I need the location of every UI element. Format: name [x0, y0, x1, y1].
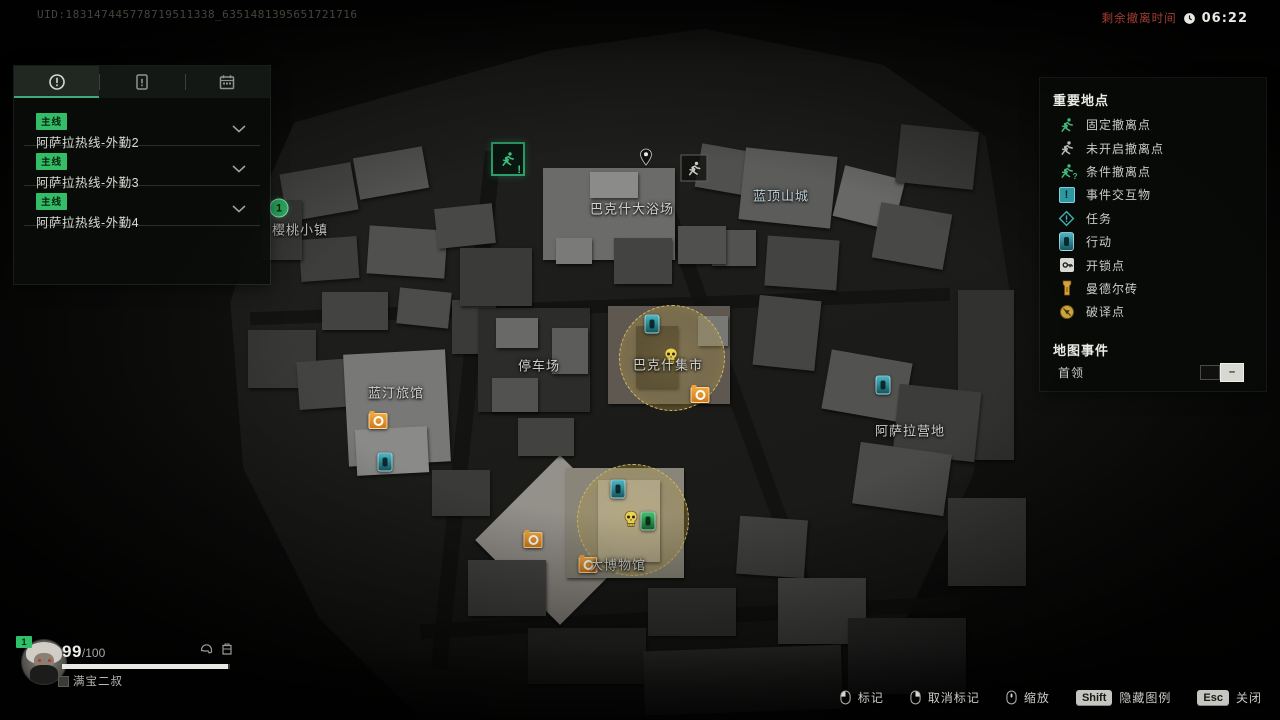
legend-item: 任务: [1040, 207, 1266, 230]
boss-label: 首领: [1058, 364, 1084, 381]
shift-key-badge: Shift: [1076, 690, 1112, 705]
tab-missions[interactable]: [14, 66, 99, 98]
legend-label: 开锁点: [1086, 257, 1125, 274]
operation-marker[interactable]: [876, 376, 891, 395]
status-icons: [200, 643, 233, 656]
legend-label: 事件交互物: [1086, 186, 1151, 203]
health-current: 99: [62, 642, 82, 661]
extraction-fixed-icon: [1058, 116, 1075, 133]
map-location-label: 阿萨拉营地: [875, 421, 945, 440]
map-event-row: 首领 –: [1040, 363, 1266, 382]
legend-label: 固定撤离点: [1086, 116, 1151, 133]
map-building: [753, 295, 822, 371]
player-info: 1 99/100 满宝二叔: [16, 634, 246, 690]
map-building: [678, 226, 726, 264]
task-green-marker[interactable]: [641, 512, 656, 531]
map-building: [468, 560, 546, 616]
legend-item: ? 条件撤离点: [1040, 160, 1266, 183]
mission-badge: 主线: [36, 113, 67, 130]
close-label: 关闭: [1236, 689, 1262, 706]
mission-badge: 主线: [36, 153, 67, 170]
map-building: [434, 203, 496, 249]
operation-marker[interactable]: [645, 315, 660, 334]
clock-icon: [1183, 12, 1196, 25]
boss-toggle[interactable]: –: [1200, 363, 1244, 382]
player-name-text: 满宝二叔: [73, 673, 123, 689]
helmet-icon: [200, 643, 213, 656]
extraction-open-marker[interactable]: !: [491, 142, 525, 176]
mission-badge: 主线: [36, 193, 67, 210]
alert-circle-icon: [48, 73, 66, 91]
mission-title: 阿萨拉热线-外勤4: [36, 212, 260, 231]
map-building: [852, 442, 952, 516]
armor-icon: [221, 643, 233, 656]
legend-label: 曼德尔砖: [1086, 280, 1138, 297]
operation-marker[interactable]: [378, 453, 393, 472]
map-location-label: 樱桃小镇: [272, 220, 328, 239]
unmark-control[interactable]: 取消标记: [910, 689, 980, 706]
mission-tabs: [14, 66, 270, 98]
mission-item[interactable]: 主线 阿萨拉热线-外勤2: [24, 106, 260, 146]
calendar-icon: [218, 73, 236, 91]
legend-label: 未开启撤离点: [1086, 140, 1164, 157]
legend-item: 破译点: [1040, 300, 1266, 323]
avatar-eye: [38, 659, 41, 662]
player-uid: UID:183147445778719511338_63514813956517…: [37, 8, 358, 21]
map-building: [496, 318, 538, 348]
legend-label: 行动: [1086, 233, 1112, 250]
lockpick-key-icon: [1058, 257, 1075, 274]
chevron-down-icon[interactable]: [232, 160, 246, 178]
map-building: [848, 618, 966, 694]
mouse-right-icon: [910, 690, 921, 705]
player-name: 满宝二叔: [58, 673, 123, 689]
map-building: [492, 378, 538, 412]
cache-marker[interactable]: [524, 532, 543, 548]
legend-item: 固定撤离点: [1040, 113, 1266, 136]
cache-marker[interactable]: [369, 413, 388, 429]
level-badge: 1: [16, 636, 32, 648]
map-location-label: 大博物馆: [590, 555, 646, 574]
map-location-label: 蓝汀旅馆: [368, 383, 424, 402]
boss-skull-marker[interactable]: [623, 510, 640, 528]
avatar-eye: [48, 659, 51, 662]
map-building: [764, 236, 839, 291]
operation-marker[interactable]: [611, 480, 626, 499]
health-bar-fill: [62, 664, 228, 669]
evac-timer-value: 06:22: [1202, 11, 1248, 26]
legend-panel: 重要地点 固定撤离点 未开启撤离点 ? 条件撤离点 ! 事件交互物 任务 行动 …: [1040, 78, 1266, 391]
map-location-label: 巴克什集市: [633, 355, 703, 374]
task-diamond-icon: [1058, 210, 1075, 227]
unmark-label: 取消标记: [928, 689, 980, 706]
map-building: [590, 172, 638, 198]
hide-legend-control[interactable]: Shift 隐藏图例: [1076, 689, 1171, 706]
extraction-closed-marker[interactable]: [681, 155, 708, 182]
legend-label: 条件撤离点: [1086, 163, 1151, 180]
map-building: [299, 236, 360, 282]
map-building: [432, 470, 490, 516]
esc-key-badge: Esc: [1197, 690, 1229, 705]
legend-item: 行动: [1040, 230, 1266, 253]
decrypt-point-icon: [1058, 303, 1075, 320]
operation-card-icon: [134, 73, 150, 91]
map-building: [643, 645, 843, 716]
event-interactable-icon: !: [1058, 186, 1075, 203]
map-building: [556, 238, 592, 264]
mission-item[interactable]: 主线 阿萨拉热线-外勤3: [24, 146, 260, 186]
extraction-closed-icon: [1058, 140, 1075, 157]
boss-toggle-track: [1200, 365, 1220, 380]
tab-operations[interactable]: [99, 66, 184, 98]
map-building: [614, 238, 672, 284]
mission-panel: 主线 阿萨拉热线-外勤2 主线 阿萨拉热线-外勤3 主线 阿萨拉热线-外勤4: [14, 66, 270, 284]
mark-label: 标记: [858, 689, 884, 706]
zoom-control[interactable]: 缩放: [1006, 689, 1050, 706]
chevron-down-icon[interactable]: [232, 120, 246, 138]
tab-schedule[interactable]: [185, 66, 270, 98]
mouse-wheel-icon: [1006, 690, 1017, 705]
evac-timer-label: 剩余撤离时间: [1102, 10, 1177, 26]
map-building: [518, 418, 574, 456]
objective-number: 1: [270, 199, 289, 218]
extraction-box-closed: [681, 155, 708, 182]
close-control[interactable]: Esc 关闭: [1197, 689, 1262, 706]
map-building: [736, 516, 808, 579]
bottom-control-bar: 标记 取消标记 缩放 Shift 隐藏图例 Esc 关闭: [840, 689, 1262, 706]
health-bar: [62, 664, 230, 669]
mark-control[interactable]: 标记: [840, 689, 884, 706]
location-pin-marker[interactable]: [640, 148, 653, 166]
map-building: [528, 628, 646, 684]
legend-item: ! 事件交互物: [1040, 183, 1266, 206]
chevron-down-icon[interactable]: [232, 200, 246, 218]
evac-timer: 剩余撤离时间 06:22: [1102, 10, 1248, 26]
hide-legend-label: 隐藏图例: [1119, 689, 1171, 706]
map-location-label: 蓝顶山城: [753, 186, 809, 205]
rank-icon: [58, 676, 69, 687]
map-events-title: 地图事件: [1053, 340, 1266, 359]
map-building: [396, 287, 451, 328]
health-numbers: 99/100: [62, 642, 105, 662]
legend-title: 重要地点: [1053, 90, 1266, 109]
avatar-mask: [30, 665, 58, 684]
boss-toggle-knob: –: [1220, 363, 1244, 382]
cache-marker[interactable]: [691, 387, 710, 403]
map-building: [648, 588, 736, 636]
zoom-label: 缩放: [1024, 689, 1050, 706]
mission-item[interactable]: 主线 阿萨拉热线-外勤4: [24, 186, 260, 226]
legend-label: 任务: [1086, 210, 1112, 227]
mandel-brick-icon: [1058, 280, 1075, 297]
objective-point-marker[interactable]: 1: [270, 199, 289, 218]
health-max: /100: [82, 646, 105, 660]
extraction-conditional-icon: ?: [1058, 163, 1075, 180]
legend-label: 破译点: [1086, 303, 1125, 320]
legend-item: 曼德尔砖: [1040, 277, 1266, 300]
operation-chip-icon: [1058, 233, 1075, 250]
map-location-label: 停车场: [518, 356, 560, 375]
map-building: [366, 225, 447, 278]
map-building: [460, 248, 532, 306]
legend-item: 未开启撤离点: [1040, 136, 1266, 159]
legend-item: 开锁点: [1040, 253, 1266, 276]
map-building: [948, 498, 1026, 586]
extraction-box: !: [491, 142, 525, 176]
map-building: [322, 292, 388, 330]
map-building: [895, 124, 979, 190]
map-location-label: 巴克什大浴场: [590, 199, 674, 218]
mouse-left-icon: [840, 690, 851, 705]
